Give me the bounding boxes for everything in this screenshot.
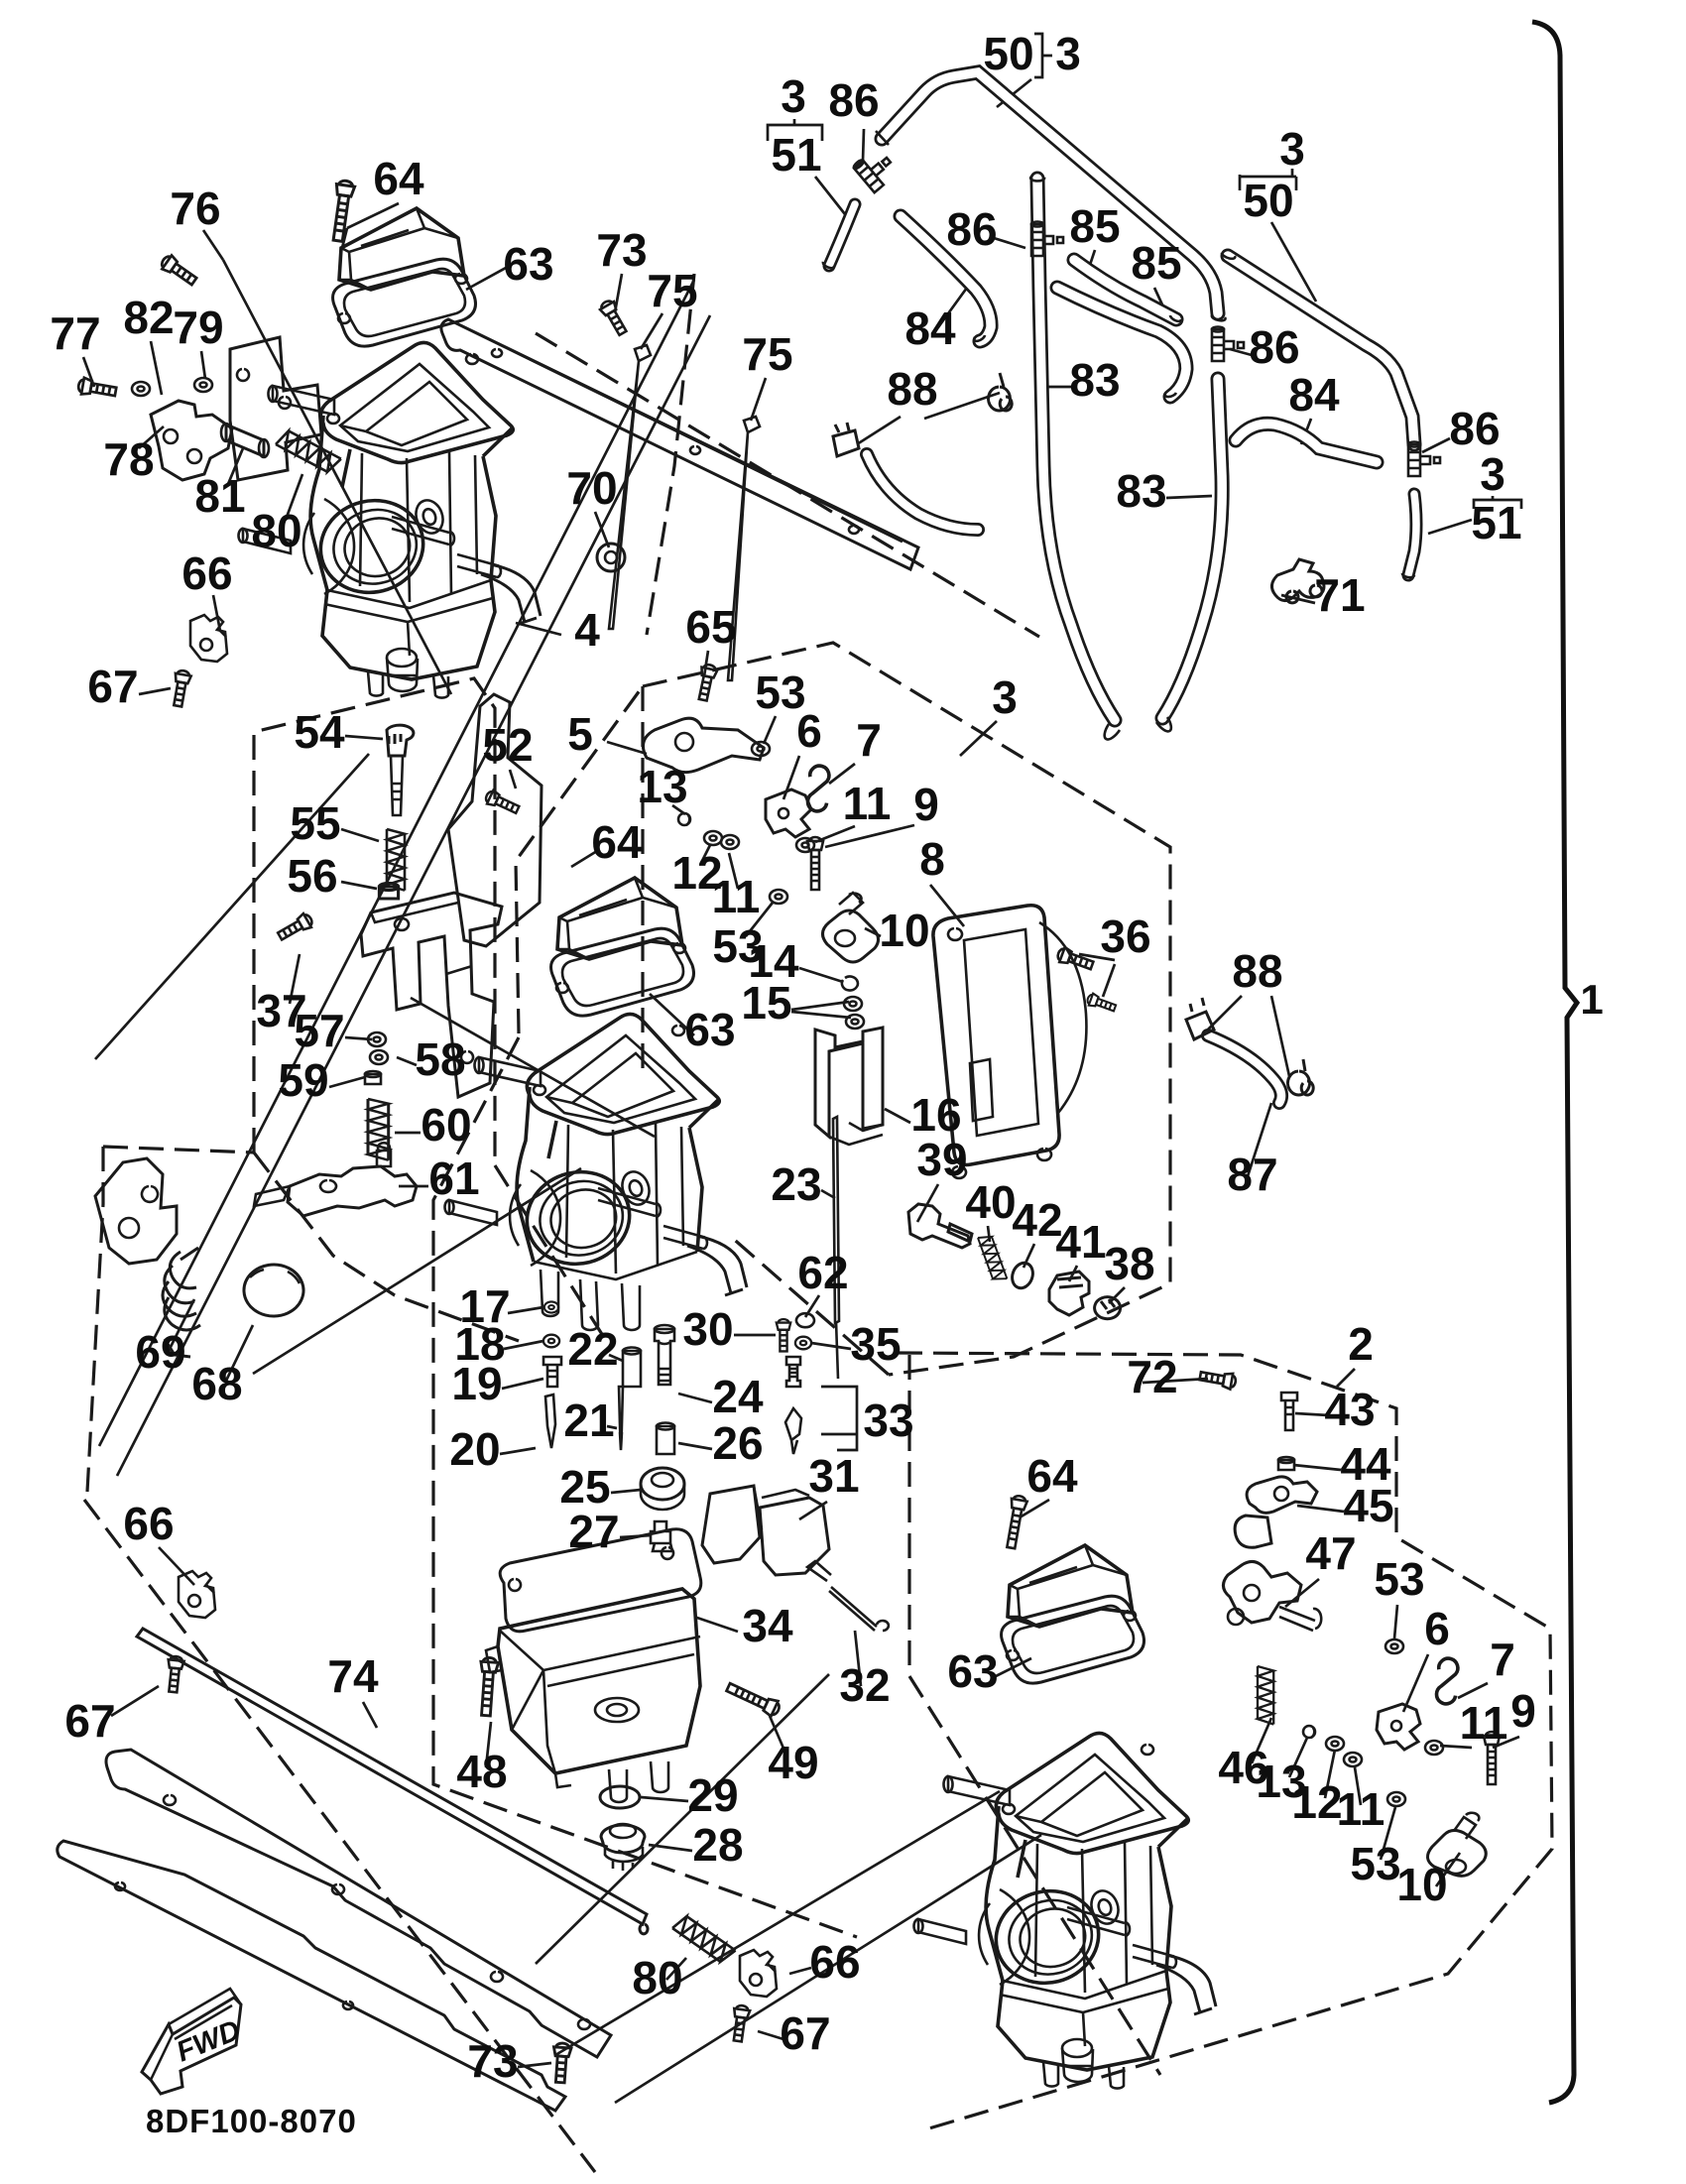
svg-text:88: 88: [887, 363, 937, 415]
svg-text:6: 6: [796, 705, 822, 757]
svg-text:73: 73: [467, 2035, 518, 2087]
svg-text:50: 50: [1243, 175, 1293, 226]
svg-text:22: 22: [567, 1323, 618, 1375]
svg-text:58: 58: [415, 1033, 465, 1085]
svg-text:76: 76: [170, 182, 220, 234]
svg-text:29: 29: [687, 1769, 738, 1821]
svg-text:66: 66: [181, 547, 232, 599]
svg-text:79: 79: [173, 302, 223, 353]
svg-text:33: 33: [863, 1395, 913, 1446]
svg-text:24: 24: [712, 1371, 764, 1422]
svg-text:74: 74: [327, 1650, 379, 1702]
svg-text:64: 64: [591, 816, 643, 868]
svg-text:56: 56: [287, 850, 337, 902]
svg-text:8DF100-8070: 8DF100-8070: [146, 2103, 357, 2139]
svg-text:30: 30: [682, 1303, 733, 1355]
svg-text:67: 67: [87, 661, 138, 712]
svg-text:51: 51: [1471, 497, 1521, 548]
svg-text:81: 81: [194, 470, 245, 522]
svg-text:10: 10: [1396, 1859, 1447, 1910]
svg-text:80: 80: [251, 505, 301, 556]
svg-text:50: 50: [983, 28, 1033, 79]
svg-text:82: 82: [123, 292, 174, 343]
svg-text:3: 3: [992, 671, 1018, 723]
svg-text:9: 9: [1510, 1685, 1536, 1737]
svg-text:3: 3: [1480, 448, 1505, 500]
svg-text:32: 32: [839, 1659, 890, 1711]
svg-text:45: 45: [1343, 1480, 1393, 1531]
svg-text:52: 52: [482, 719, 533, 771]
svg-text:59: 59: [278, 1054, 328, 1106]
svg-text:53: 53: [1374, 1553, 1424, 1605]
svg-text:61: 61: [428, 1153, 479, 1204]
svg-text:85: 85: [1131, 237, 1181, 289]
svg-text:21: 21: [563, 1395, 614, 1446]
svg-text:75: 75: [647, 265, 697, 316]
svg-text:83: 83: [1116, 465, 1166, 517]
svg-text:60: 60: [421, 1099, 471, 1151]
svg-text:35: 35: [850, 1318, 901, 1370]
svg-text:1: 1: [1580, 976, 1603, 1023]
svg-text:2: 2: [1348, 1318, 1374, 1370]
svg-text:5: 5: [567, 708, 593, 760]
svg-text:3: 3: [781, 70, 806, 122]
svg-text:10: 10: [879, 905, 929, 956]
svg-text:7: 7: [856, 714, 882, 766]
svg-text:86: 86: [946, 203, 997, 255]
svg-text:38: 38: [1104, 1238, 1154, 1289]
svg-text:11: 11: [843, 778, 892, 829]
svg-text:40: 40: [965, 1176, 1016, 1228]
svg-text:62: 62: [797, 1247, 848, 1298]
svg-text:63: 63: [684, 1004, 735, 1055]
svg-text:80: 80: [632, 1952, 682, 2003]
svg-text:11: 11: [1337, 1783, 1385, 1835]
svg-text:11: 11: [712, 871, 761, 922]
svg-text:73: 73: [596, 224, 647, 276]
svg-text:71: 71: [1314, 569, 1365, 621]
svg-text:68: 68: [191, 1358, 242, 1409]
svg-text:66: 66: [809, 1936, 860, 1988]
svg-text:3: 3: [1055, 28, 1081, 79]
svg-text:67: 67: [64, 1695, 115, 1747]
svg-text:57: 57: [294, 1005, 344, 1056]
svg-text:12: 12: [1291, 1776, 1342, 1828]
svg-text:87: 87: [1227, 1149, 1277, 1200]
svg-text:84: 84: [1288, 369, 1340, 421]
svg-text:69: 69: [135, 1326, 185, 1378]
svg-text:67: 67: [780, 2007, 830, 2059]
svg-text:3: 3: [1279, 123, 1305, 175]
svg-text:27: 27: [568, 1506, 619, 1557]
svg-text:23: 23: [771, 1158, 821, 1210]
svg-text:85: 85: [1069, 200, 1120, 252]
svg-text:72: 72: [1127, 1351, 1177, 1402]
svg-text:88: 88: [1232, 945, 1282, 997]
svg-text:28: 28: [692, 1819, 743, 1871]
svg-text:63: 63: [947, 1645, 998, 1697]
svg-text:70: 70: [566, 462, 617, 514]
svg-text:77: 77: [50, 307, 100, 359]
svg-text:39: 39: [916, 1134, 967, 1185]
svg-text:47: 47: [1305, 1527, 1356, 1579]
svg-text:66: 66: [123, 1498, 174, 1549]
svg-text:31: 31: [808, 1450, 859, 1502]
svg-text:86: 86: [1449, 403, 1500, 454]
svg-text:78: 78: [103, 433, 154, 485]
svg-text:54: 54: [294, 706, 345, 758]
svg-text:86: 86: [828, 74, 879, 126]
svg-text:26: 26: [712, 1417, 763, 1469]
svg-text:11: 11: [1460, 1697, 1508, 1749]
svg-text:4: 4: [574, 604, 600, 656]
svg-text:49: 49: [768, 1737, 818, 1788]
svg-text:7: 7: [1490, 1634, 1515, 1685]
svg-text:83: 83: [1069, 354, 1120, 406]
svg-text:8: 8: [919, 833, 945, 885]
svg-text:53: 53: [1350, 1838, 1400, 1889]
svg-text:63: 63: [503, 238, 553, 290]
svg-text:64: 64: [373, 153, 424, 204]
svg-text:34: 34: [742, 1600, 793, 1651]
svg-text:15: 15: [741, 977, 791, 1029]
svg-text:43: 43: [1324, 1384, 1375, 1435]
svg-text:51: 51: [771, 129, 821, 181]
svg-text:20: 20: [449, 1423, 500, 1475]
svg-text:48: 48: [456, 1746, 507, 1797]
svg-text:9: 9: [913, 779, 939, 830]
svg-text:86: 86: [1249, 321, 1299, 373]
svg-text:55: 55: [290, 797, 340, 849]
svg-text:41: 41: [1055, 1216, 1106, 1268]
svg-text:84: 84: [904, 303, 956, 354]
svg-text:36: 36: [1100, 910, 1150, 962]
svg-text:64: 64: [1026, 1450, 1078, 1502]
svg-text:19: 19: [451, 1358, 502, 1409]
svg-text:13: 13: [637, 761, 687, 812]
svg-text:6: 6: [1424, 1603, 1450, 1654]
svg-text:75: 75: [742, 328, 792, 380]
svg-text:65: 65: [685, 601, 736, 653]
